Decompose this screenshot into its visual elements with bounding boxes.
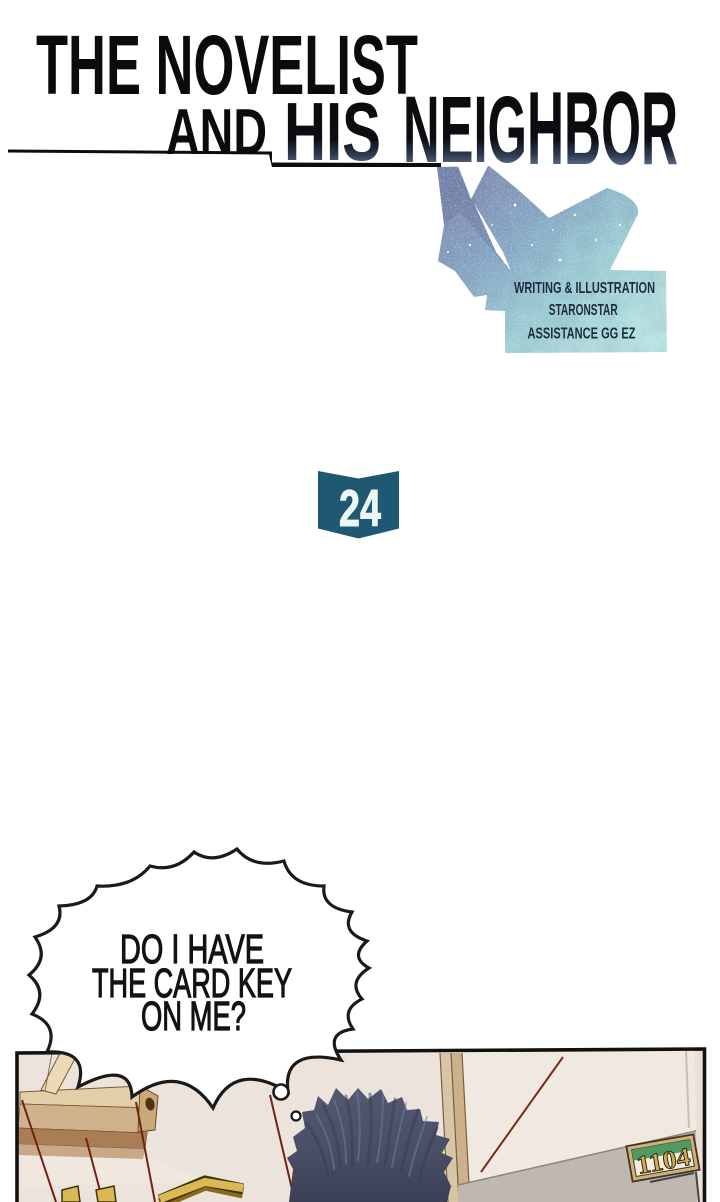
svg-text:ON ME?: ON ME? bbox=[141, 993, 246, 1039]
svg-text:STARONSTAR: STARONSTAR bbox=[549, 302, 618, 319]
svg-text:WRITING & ILLUSTRATION: WRITING & ILLUSTRATION bbox=[514, 280, 655, 297]
svg-text:24: 24 bbox=[339, 480, 381, 538]
svg-text:HBOR: HBOR bbox=[527, 71, 678, 187]
svg-text:AND: AND bbox=[166, 95, 267, 168]
svg-text:HIS: HIS bbox=[284, 85, 381, 178]
svg-text:ASSISTANCE GG EZ: ASSISTANCE GG EZ bbox=[528, 326, 636, 343]
svg-text:NEIG: NEIG bbox=[403, 77, 527, 183]
